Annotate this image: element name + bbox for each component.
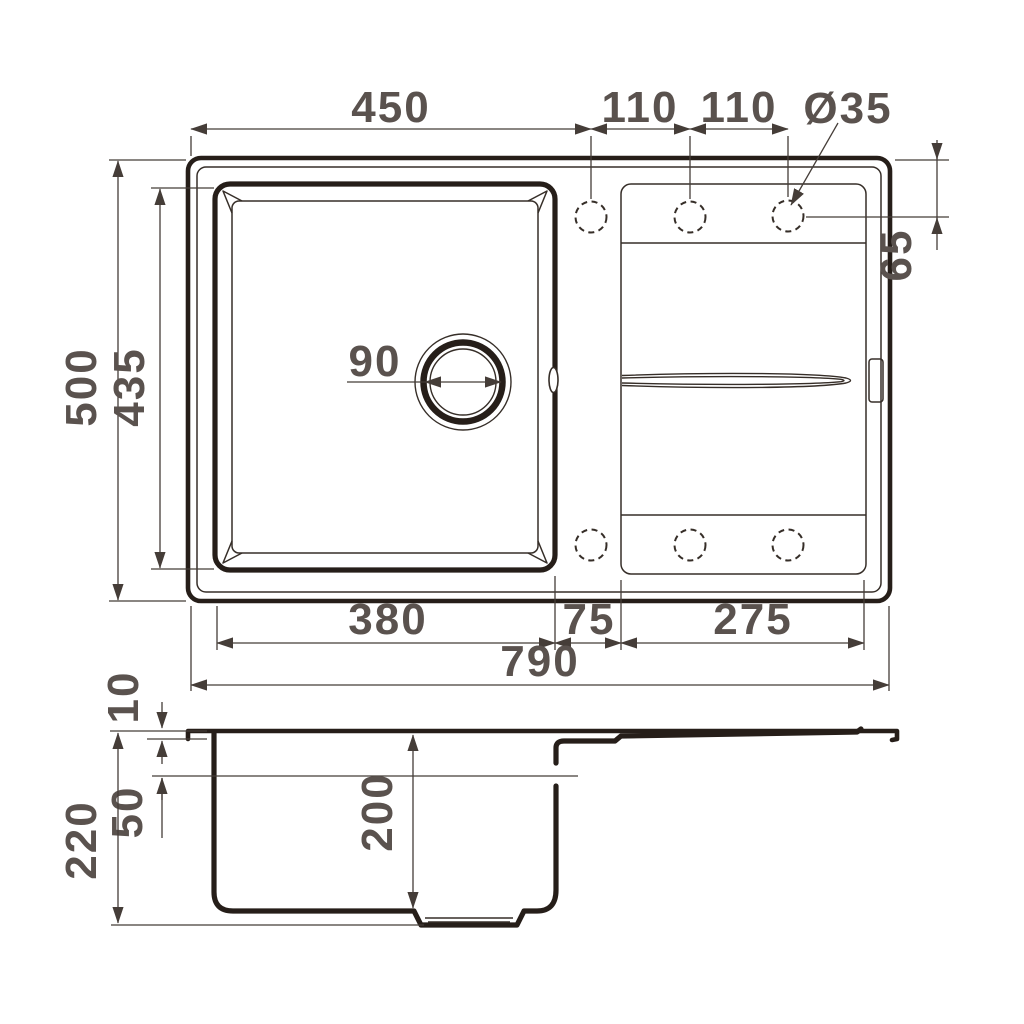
- faucet-hole: [576, 202, 607, 233]
- dim-label-220: 220: [57, 800, 106, 879]
- overflow-slot: [549, 368, 558, 393]
- sink-outer-outline: [188, 158, 890, 601]
- dim-label-hole-diameter: Ø35: [803, 84, 892, 133]
- dim-label-380: 380: [348, 595, 427, 644]
- top-view: 450 110 110 Ø35 65 500 435 90: [57, 83, 949, 691]
- dim-label-10: 10: [99, 671, 148, 724]
- drain-groove-inner: [622, 377, 844, 385]
- sink-dimension-drawing: 450 110 110 Ø35 65 500 435 90: [0, 0, 1024, 1024]
- dim-label-65: 65: [872, 229, 921, 282]
- dim-label-110b: 110: [701, 83, 778, 132]
- dim-label-450: 450: [351, 83, 430, 132]
- drainboard-profile: [556, 729, 861, 763]
- faucet-hole: [773, 201, 804, 232]
- leader-line-hole-diameter: [791, 123, 838, 205]
- side-view: 10 50 220 200: [57, 671, 897, 925]
- dim-label-790: 790: [500, 637, 579, 686]
- dim-label-50: 50: [103, 786, 152, 839]
- drainboard: [621, 184, 883, 574]
- dim-label-435: 435: [105, 347, 154, 426]
- dim-label-90: 90: [349, 337, 402, 386]
- faucet-holes: [576, 201, 804, 561]
- faucet-hole: [675, 530, 706, 561]
- faucet-hole: [576, 530, 607, 561]
- dim-label-110a: 110: [602, 83, 679, 132]
- faucet-hole: [675, 202, 706, 233]
- dim-label-275: 275: [713, 595, 792, 644]
- faucet-hole: [773, 530, 804, 561]
- drawing-svg: 450 110 110 Ø35 65 500 435 90: [0, 0, 1024, 1024]
- side-view-dimensions: 10 50 220 200: [57, 671, 413, 923]
- dim-label-500: 500: [57, 347, 106, 426]
- sink-inner-rim-line: [197, 167, 881, 592]
- dim-label-200: 200: [353, 772, 402, 851]
- drain-groove-outer: [622, 373, 851, 387]
